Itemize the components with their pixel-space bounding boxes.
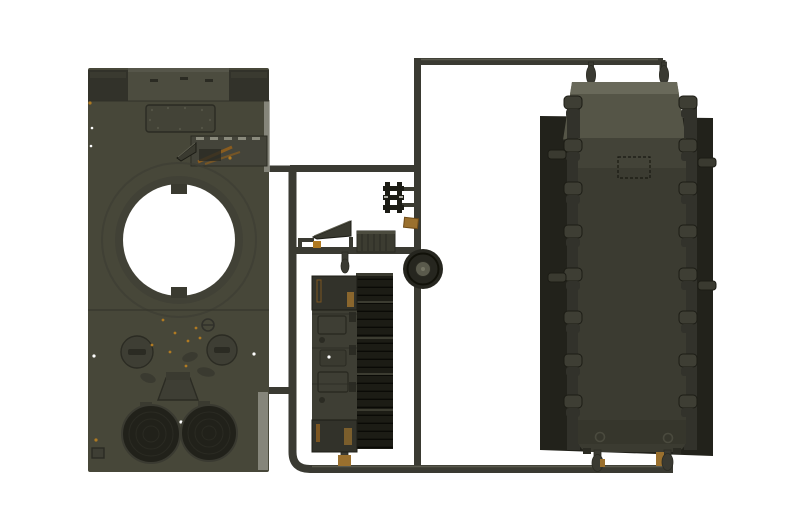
hull-top-block-left-highlight: [90, 72, 126, 78]
engine-deck-part: [312, 273, 393, 452]
engine-grille-right: [181, 405, 237, 461]
hull-end-plate-top: [570, 82, 679, 94]
road-wheel-part: [403, 249, 443, 289]
hull-top-band-edge: [128, 68, 229, 72]
recessed-hatch-panel: [146, 105, 215, 132]
h-bracket-light-mark-2: [399, 196, 403, 198]
tub-foot-right: [673, 448, 681, 454]
louvre-top-edge: [356, 273, 393, 276]
tan-clip-part: [404, 217, 419, 228]
slat-panel-part: [357, 231, 395, 252]
axle-stub-right-2: [698, 281, 716, 290]
bottom-gate-left-tan: [600, 459, 605, 467]
deck-ejector-dot: [327, 355, 330, 358]
tan-gate-mark: [338, 455, 351, 466]
deck-gate-top: [341, 252, 349, 273]
deck-bottom-tan-mark: [344, 428, 352, 445]
deck-top-tan-mark: [347, 292, 354, 307]
h-bracket-light-mark-1: [384, 196, 388, 198]
axle-stub-left-1: [548, 150, 566, 159]
slat-top-edge: [357, 231, 395, 234]
crew-hatch-right-bar: [214, 347, 230, 353]
sprue-photo: [0, 0, 800, 530]
hull-top-band: [128, 68, 229, 101]
louvre-slab: [356, 273, 393, 449]
tool-paint-dot: [228, 156, 231, 159]
hull-corner-port: [92, 448, 104, 458]
crew-hatch-left-bar: [128, 349, 146, 355]
deck-bottom-rust-streak: [316, 424, 320, 442]
ventilator-cone-top: [166, 372, 190, 380]
photo-stage: [0, 0, 800, 530]
wheel-hub-center: [421, 267, 425, 271]
hull-edge-highlight-lower: [258, 392, 268, 470]
upper-hull-part: [88, 68, 270, 472]
wedge-orange-mark: [313, 241, 321, 248]
tool-block: [199, 149, 221, 161]
tub-foot-left: [583, 448, 591, 454]
hull-gate-lower: [266, 387, 294, 394]
tub-bottom-shade: [578, 420, 686, 444]
hull-top-block-right-highlight: [231, 72, 267, 78]
turret-ring-opening: [123, 184, 235, 296]
turret-ring-tab-top: [171, 184, 187, 194]
engine-grille-left: [122, 405, 180, 463]
turret-ring-tab-bottom: [171, 287, 187, 298]
hull-tub-glacis: [578, 138, 686, 168]
hull-tub-body: [578, 138, 686, 452]
lower-hull-part: [540, 82, 716, 472]
axle-stub-right-1: [698, 158, 716, 167]
axle-stub-left-2: [548, 273, 566, 282]
